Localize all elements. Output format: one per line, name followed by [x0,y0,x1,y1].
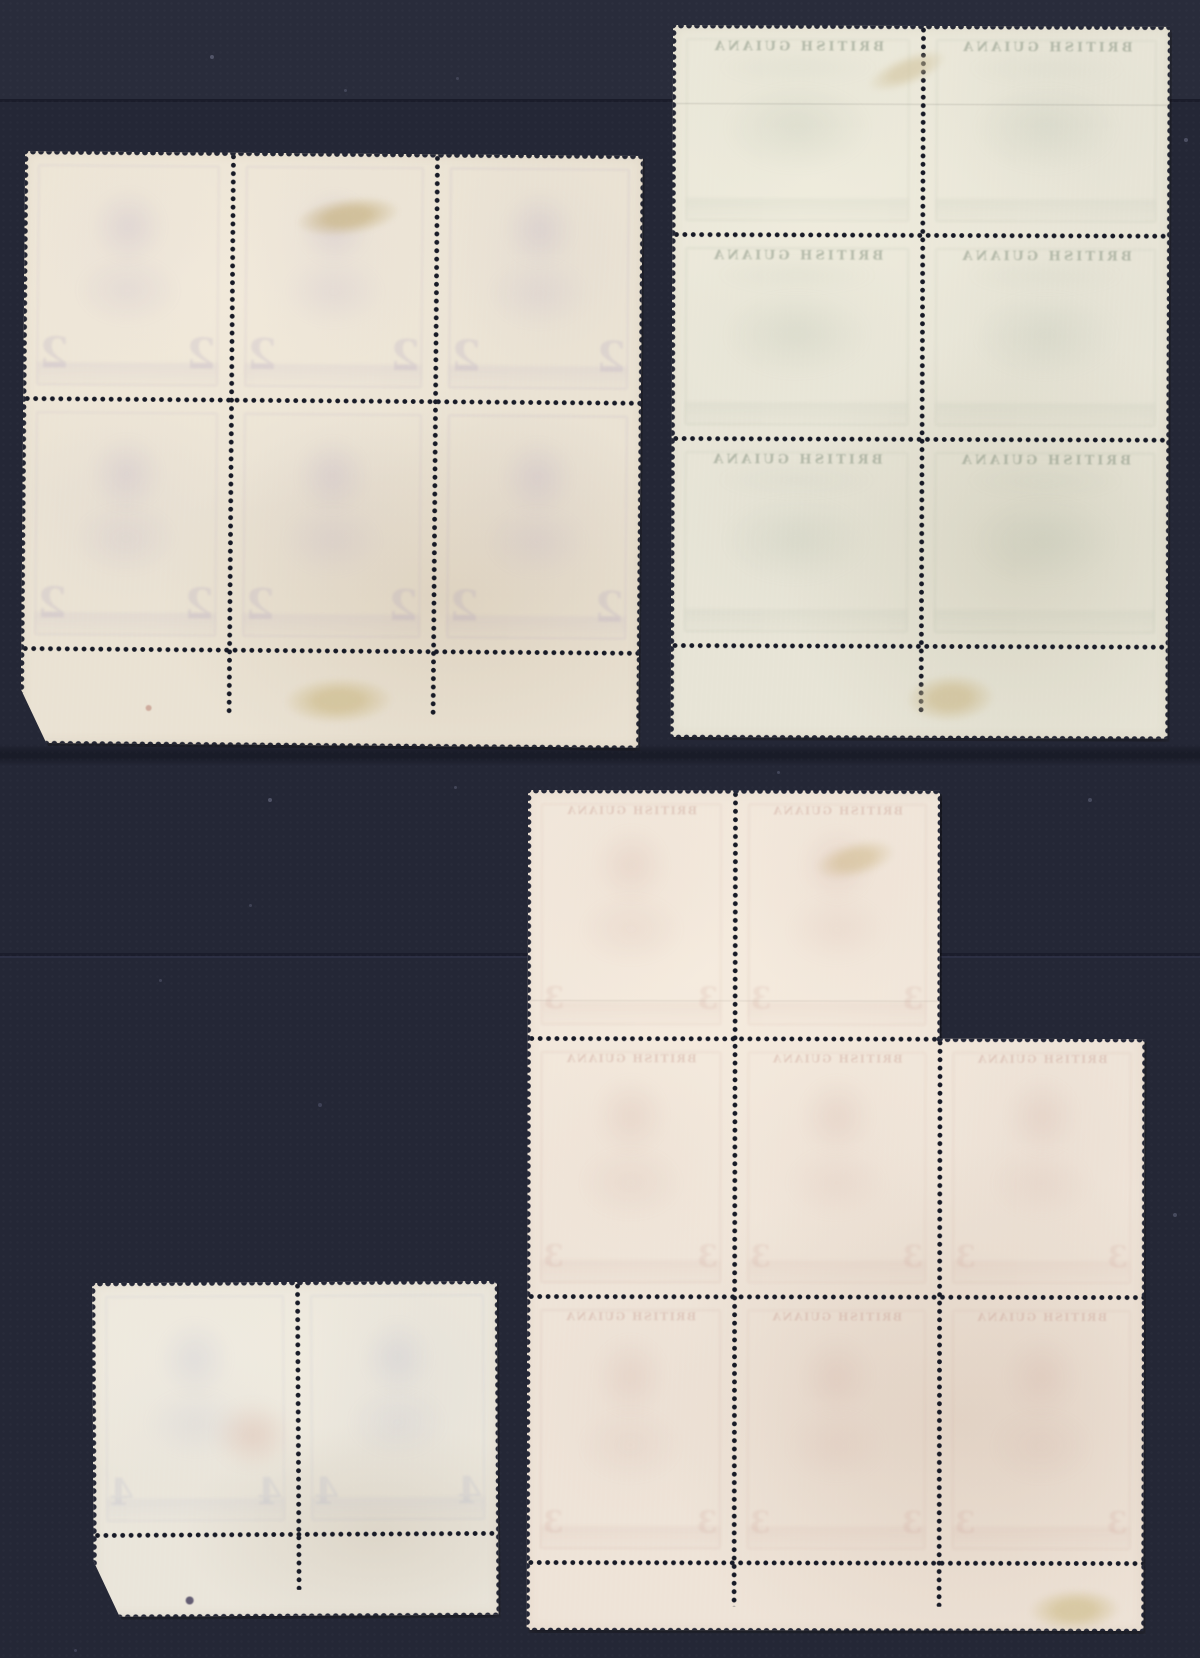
country-name-showthrough-mirrored: BRITISH GUIANA [672,248,922,264]
vignette-showthrough [471,497,604,588]
value-digit-showthrough-mirrored: 4 [257,1474,282,1510]
vignette-showthrough [266,495,397,586]
stamp: 22 [435,154,643,403]
stamp: BRITISH GUIANA [671,438,922,646]
value-tablet-showthrough [541,1260,720,1284]
scene-showthrough [702,279,892,390]
perforation-line [527,1559,1144,1565]
value-digit-showthrough-mirrored: 2 [184,583,214,625]
block-bottom-right-eight: BRITISH GUIANA33BRITISH GUIANA33BRITISH … [527,790,1145,1631]
stamp: BRITISH GUIANA [672,234,923,439]
stamp: BRITISH GUIANA33 [527,1038,734,1296]
vignette-showthrough [772,885,903,974]
stamp-block: 222222222222 [20,151,643,748]
value-digit-showthrough-mirrored: 4 [314,1474,339,1510]
value-digit-showthrough-mirrored: 4 [457,1473,482,1509]
value-tablet-showthrough [935,610,1154,635]
value-tablet-showthrough [748,1260,925,1284]
country-name-showthrough-mirrored: BRITISH GUIANA [939,1311,1144,1324]
dust-speck [1184,138,1188,142]
value-digit-showthrough-mirrored: 2 [37,582,67,624]
value-tablet-showthrough [686,198,908,223]
vignette-showthrough [976,1398,1107,1494]
dust-speck [159,979,162,982]
value-digit-showthrough-mirrored: 2 [449,585,479,627]
value-digit-showthrough-mirrored: 3 [697,1242,718,1272]
value-digit-showthrough-mirrored: 2 [596,336,626,378]
stockbook-page: Four mint stamp multiples shown gum-side… [0,0,1200,1658]
scene-showthrough [951,280,1139,391]
country-name-showthrough-mirrored: BRITISH GUIANA [734,1310,939,1323]
perforation-line [936,1039,942,1607]
perforation-edge [523,786,531,1634]
value-digit-showthrough-mirrored: 3 [543,1508,564,1538]
stamp: BRITISH GUIANA33 [734,1296,939,1562]
ink-speck [186,1596,194,1604]
value-tablet-showthrough [953,1527,1130,1551]
dust-speck [1173,1213,1177,1217]
value-digit-showthrough-mirrored: 3 [697,1508,718,1538]
dust-speck [268,798,272,802]
country-name-showthrough-mirrored: BRITISH GUIANA [527,1310,734,1323]
stamp: BRITISH GUIANA33 [734,1038,939,1296]
country-name-showthrough-mirrored: BRITISH GUIANA [735,804,940,817]
stamp: 44 [297,1281,498,1534]
dust-speck [210,55,214,59]
scene-showthrough [701,484,891,596]
stamp: BRITISH GUIANA [921,439,1169,647]
country-name-showthrough-mirrored: BRITISH GUIANA [528,1052,735,1065]
vignette-showthrough [771,1398,902,1494]
vignette-showthrough [565,884,698,973]
value-digit-showthrough-mirrored: 3 [1107,1243,1128,1273]
country-name-showthrough-mirrored: BRITISH GUIANA [671,452,921,468]
value-digit-showthrough-mirrored: 3 [955,1509,976,1539]
country-name-showthrough-mirrored: BRITISH GUIANA [735,1052,940,1065]
value-tablet-showthrough [542,1002,721,1026]
value-digit-showthrough-mirrored: 3 [1107,1509,1128,1539]
stamp: BRITISH GUIANA33 [939,1297,1144,1563]
value-digit-showthrough-mirrored: 3 [902,1509,923,1539]
dust-speck [249,904,252,907]
stamp: BRITISH GUIANA [922,235,1170,440]
vignette-showthrough [771,1136,902,1229]
stamp: BRITISH GUIANA [672,25,923,235]
value-digit-showthrough-mirrored: 4 [109,1475,134,1511]
vignette-showthrough [564,1397,697,1493]
country-name-showthrough-mirrored: BRITISH GUIANA [673,39,923,55]
value-digit-showthrough-mirrored: 2 [451,335,481,377]
perforation-edge [936,1035,1149,1042]
dust-speck [344,89,347,92]
perforation-line [527,1293,1144,1299]
value-digit-showthrough-mirrored: 3 [750,1508,771,1538]
value-digit-showthrough-mirrored: 3 [750,1242,771,1272]
value-digit-showthrough-mirrored: 2 [186,333,216,375]
value-tablet-showthrough [748,1526,925,1550]
value-tablet-showthrough [685,609,907,634]
value-tablet-showthrough [749,1002,926,1026]
perforation-edge [524,786,944,794]
country-name-showthrough-mirrored: BRITISH GUIANA [921,453,1168,469]
vignette-showthrough [564,1136,697,1229]
stamp-block: BRITISH GUIANA33BRITISH GUIANA33BRITISH … [527,790,1145,1631]
stamp: 22 [433,401,641,653]
value-tablet-showthrough [953,1261,1130,1285]
ink-speck [146,705,152,711]
value-digit-showthrough-mirrored: 2 [388,585,418,627]
pair-bottom-left: 4444 [92,1281,499,1617]
block-top-right-six: BRITISH GUIANABRITISH GUIANABRITISH GUIA… [671,25,1170,739]
value-tablet-showthrough [686,402,908,427]
country-name-showthrough-mirrored: BRITISH GUIANA [922,249,1169,265]
stamp: 22 [21,398,231,650]
country-name-showthrough-mirrored: BRITISH GUIANA [528,804,735,817]
scene-showthrough [951,485,1139,597]
vignette-showthrough [473,248,606,338]
value-digit-showthrough-mirrored: 2 [39,332,69,374]
color-showthrough-patch [213,1400,293,1470]
value-digit-showthrough-mirrored: 3 [544,984,565,1014]
country-name-showthrough-mirrored: BRITISH GUIANA [940,1053,1145,1066]
vignette-showthrough [61,245,195,335]
value-digit-showthrough-mirrored: 2 [247,334,277,376]
vignette-showthrough [976,1137,1107,1230]
value-digit-showthrough-mirrored: 3 [955,1243,976,1273]
value-digit-showthrough-mirrored: 2 [245,584,275,626]
dust-speck [318,1103,322,1107]
stamp: 22 [23,151,233,400]
vignette-showthrough [268,247,399,337]
perforation-edge [88,1279,96,1565]
dust-speck [74,1649,77,1652]
stamp: BRITISH GUIANA33 [939,1039,1144,1297]
stamp: 22 [229,400,435,652]
value-tablet-showthrough [541,1526,720,1550]
dust-speck [454,786,457,789]
value-tablet-showthrough [936,199,1155,224]
value-digit-showthrough-mirrored: 3 [543,1242,564,1272]
value-digit-showthrough-mirrored: 2 [594,586,624,628]
stamp-block: 4444 [92,1281,499,1617]
value-digit-showthrough-mirrored: 3 [902,1243,923,1273]
vignette-showthrough [59,493,193,584]
stamp: BRITISH GUIANA33 [527,1296,734,1562]
stamp-block: BRITISH GUIANABRITISH GUIANABRITISH GUIA… [671,25,1170,739]
country-name-showthrough-mirrored: BRITISH GUIANA [923,40,1170,56]
block-top-left-six: 222222222222 [20,151,643,748]
dust-speck [456,77,459,80]
stamp: BRITISH GUIANA [922,26,1170,236]
value-tablet-showthrough [936,403,1155,428]
dust-speck [777,771,780,774]
stamp: 22 [231,153,437,402]
value-digit-showthrough-mirrored: 2 [390,335,420,377]
